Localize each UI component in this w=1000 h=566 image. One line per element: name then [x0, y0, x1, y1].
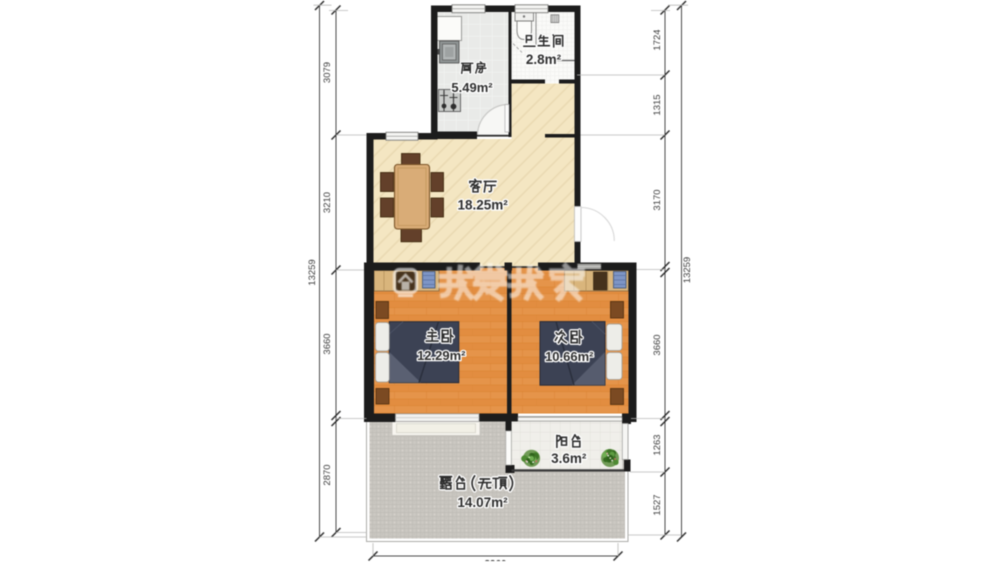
svg-text:2870: 2870 — [322, 464, 333, 485]
svg-text:13259: 13259 — [307, 259, 318, 285]
svg-text:2.8m²: 2.8m² — [526, 52, 562, 67]
svg-text:3660: 3660 — [652, 334, 663, 355]
svg-text:1724: 1724 — [652, 29, 663, 50]
svg-text:3210: 3210 — [322, 192, 333, 213]
svg-text:14.07m²: 14.07m² — [457, 495, 508, 510]
svg-text:3079: 3079 — [322, 62, 333, 83]
svg-text:1263: 1263 — [652, 434, 663, 455]
svg-text:3.6m²: 3.6m² — [551, 451, 587, 466]
svg-text:18.25m²: 18.25m² — [457, 198, 508, 213]
svg-text:10.66m²: 10.66m² — [545, 349, 594, 364]
svg-text:3170: 3170 — [652, 189, 663, 210]
svg-text:1527: 1527 — [652, 494, 663, 515]
svg-text:13259: 13259 — [682, 257, 693, 283]
svg-text:5.49m²: 5.49m² — [451, 80, 493, 95]
svg-text:3660: 3660 — [322, 333, 333, 354]
svg-text:1315: 1315 — [652, 94, 663, 115]
svg-text:12.29m²: 12.29m² — [417, 348, 466, 363]
